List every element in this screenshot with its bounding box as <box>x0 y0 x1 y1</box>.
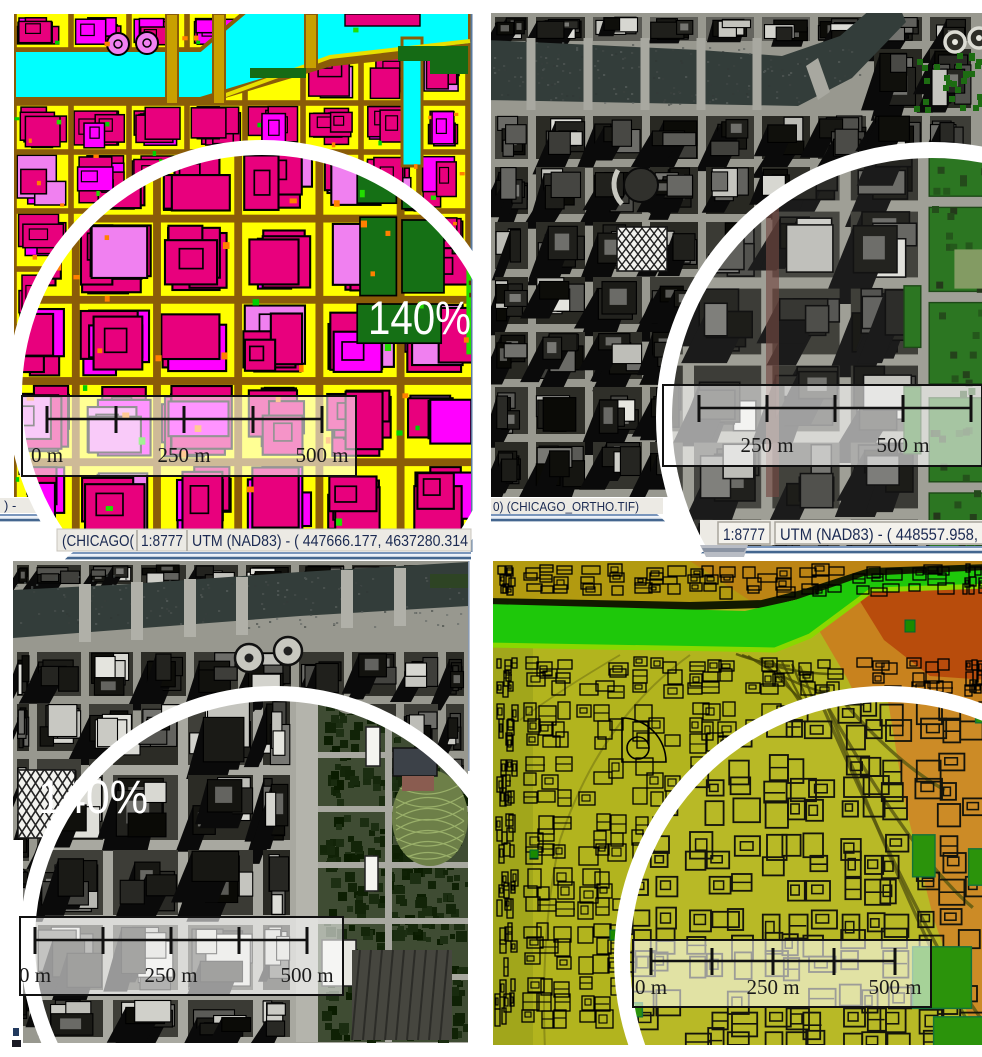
svg-text:140%: 140% <box>38 770 148 823</box>
svg-text:) -: ) - <box>4 498 16 513</box>
svg-text:250 m: 250 m <box>144 963 197 987</box>
svg-text:500 m: 500 m <box>280 963 333 987</box>
svg-text:UTM (NAD83) - ( 448557.958,: UTM (NAD83) - ( 448557.958, <box>780 525 978 544</box>
svg-text:0) (CHICAGO_ORTHO.TIF): 0) (CHICAGO_ORTHO.TIF) <box>493 499 639 514</box>
svg-text:(CHICAGO(: (CHICAGO( <box>62 533 135 550</box>
svg-text:1:8777: 1:8777 <box>141 533 183 550</box>
svg-text:500 m: 500 m <box>868 975 921 999</box>
svg-text:250 m: 250 m <box>740 433 793 457</box>
svg-text:1:8777: 1:8777 <box>723 525 765 544</box>
svg-text:UTM (NAD83) - ( 447666.177, 46: UTM (NAD83) - ( 447666.177, 4637280.314 <box>192 533 468 550</box>
svg-text:500 m: 500 m <box>295 443 348 467</box>
svg-text:500 m: 500 m <box>876 433 929 457</box>
svg-text:0 m: 0 m <box>635 975 667 999</box>
svg-text:140%: 140% <box>368 291 471 344</box>
svg-text:0 m: 0 m <box>19 963 51 987</box>
svg-text:0 m: 0 m <box>31 443 63 467</box>
svg-text:250 m: 250 m <box>157 443 210 467</box>
svg-text:250 m: 250 m <box>746 975 799 999</box>
